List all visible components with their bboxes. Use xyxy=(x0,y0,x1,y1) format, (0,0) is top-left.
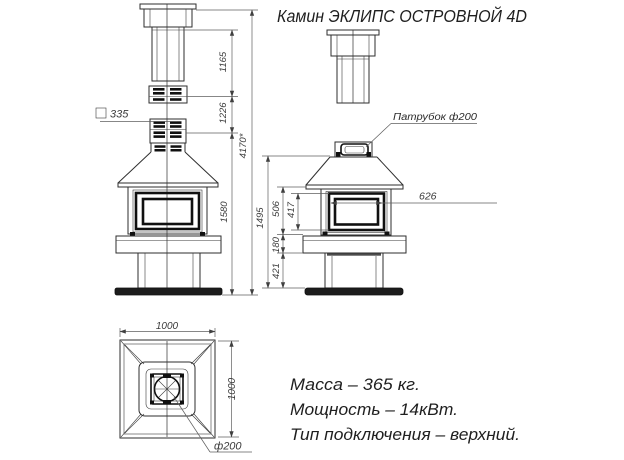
front-view-dimensions: 1165 1226 1580 4170* 335 xyxy=(96,10,258,295)
front-hood-base xyxy=(118,183,218,187)
top-view-dimensions: 1000 1000 ф200 xyxy=(120,321,252,453)
dim-pedestal-height: 421 xyxy=(271,263,282,279)
pipe-diameter-callout: ф200 xyxy=(174,397,252,453)
dim-flue-square: 335 xyxy=(110,109,129,121)
front-chimney-pipe xyxy=(152,27,184,81)
dim-body-height: 1580 xyxy=(219,201,230,223)
spec-power: Мощность – 14кВт. xyxy=(290,401,458,419)
front-base-plate xyxy=(115,288,222,295)
front-view xyxy=(115,4,222,295)
dim-flue-modules: 1226 xyxy=(218,102,229,124)
front-flue-module-1 xyxy=(149,86,187,103)
front-firebox xyxy=(128,187,207,236)
dim-shelf-height: 180 xyxy=(271,236,282,253)
side-firebox xyxy=(321,189,391,235)
dim-glass-height: 417 xyxy=(286,201,297,218)
pipe-diameter-label: ф200 xyxy=(214,441,242,453)
dim-total-height: 4170* xyxy=(238,133,249,158)
drawing-title: Камин ЭКЛИПС ОСТРОВНОЙ 4D xyxy=(277,5,527,26)
top-view xyxy=(120,340,215,438)
front-shelf xyxy=(116,236,221,253)
front-flue-module-2 xyxy=(150,119,186,143)
dim-glass-width: 626 xyxy=(419,191,437,203)
technical-drawing: Камин ЭКЛИПС ОСТРОВНОЙ 4D xyxy=(0,0,624,460)
square-section-icon xyxy=(96,108,106,118)
dim-view-height: 1495 xyxy=(255,207,266,229)
side-view xyxy=(303,30,406,295)
specs-block: Масса – 365 кг. Мощность – 14кВт. Тип по… xyxy=(290,376,520,444)
drawing-sheet: Камин ЭКЛИПС ОСТРОВНОЙ 4D xyxy=(0,0,624,460)
pipe-socket-label: Патрубок ф200 xyxy=(393,111,477,123)
side-pedestal xyxy=(325,253,383,288)
side-hood-base xyxy=(306,185,403,189)
dim-top-width: 1000 xyxy=(156,321,179,332)
front-hood xyxy=(118,143,218,187)
dim-chimney-pipe: 1165 xyxy=(218,51,229,72)
spec-mass: Масса – 365 кг. xyxy=(290,376,420,394)
front-chimney-cap xyxy=(140,4,196,27)
spec-connection: Тип подключения – верхний. xyxy=(290,426,520,444)
side-hood xyxy=(306,142,403,189)
side-base-plate xyxy=(305,288,403,295)
side-shelf xyxy=(303,236,406,253)
front-pedestal xyxy=(138,253,200,288)
dim-top-depth: 1000 xyxy=(227,377,238,400)
dim-hood-to-shelf: 506 xyxy=(271,200,282,217)
pipe-socket-callout: Патрубок ф200 xyxy=(366,111,477,147)
